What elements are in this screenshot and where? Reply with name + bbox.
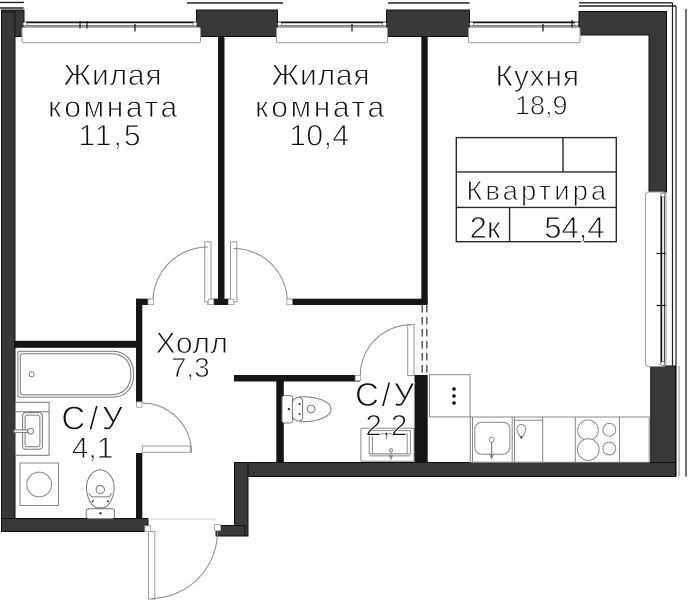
svg-text:Жилая: Жилая xyxy=(64,59,163,92)
svg-text:4,1: 4,1 xyxy=(72,432,114,465)
svg-text:Кухня: Кухня xyxy=(496,60,580,93)
svg-text:Квартира: Квартира xyxy=(466,175,609,206)
svg-text:2,2: 2,2 xyxy=(365,409,408,442)
svg-text:10,4: 10,4 xyxy=(289,119,349,152)
svg-text:54,4: 54,4 xyxy=(544,210,604,245)
svg-text:С/У: С/У xyxy=(61,399,126,436)
svg-text:18,9: 18,9 xyxy=(515,91,568,121)
svg-text:2к: 2к xyxy=(470,210,501,245)
svg-text:7,3: 7,3 xyxy=(171,352,210,383)
svg-text:С/У: С/У xyxy=(355,376,417,413)
svg-text:Жилая: Жилая xyxy=(272,59,371,92)
svg-text:11,5: 11,5 xyxy=(78,119,142,152)
